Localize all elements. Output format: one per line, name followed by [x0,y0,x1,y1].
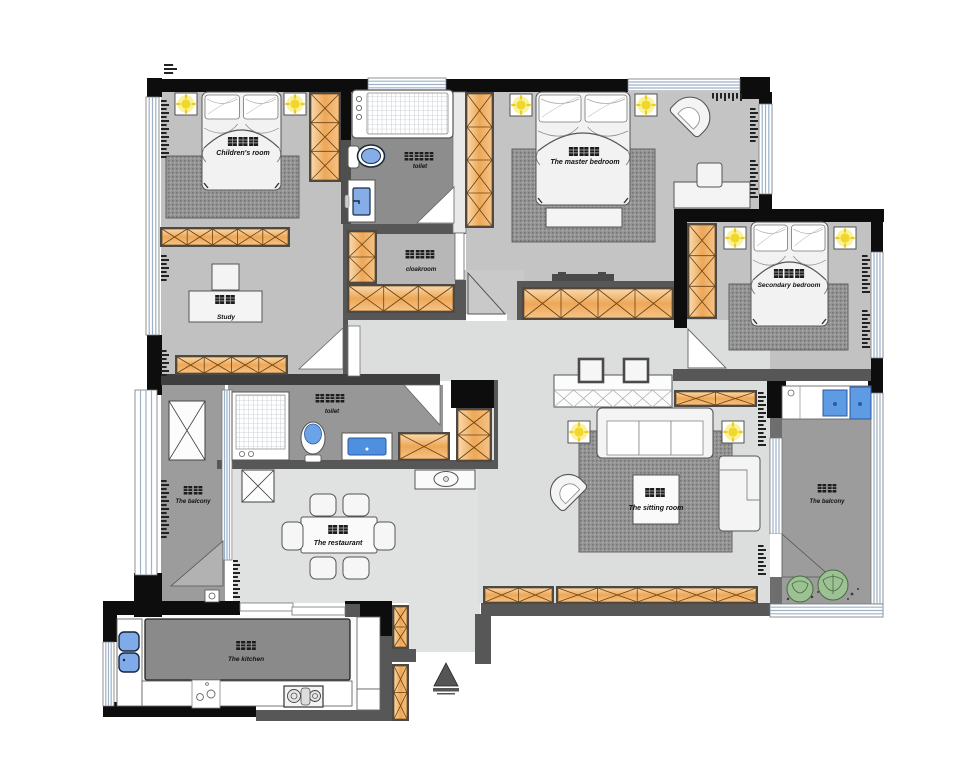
svg-text:Children's room: Children's room [216,150,269,157]
svg-text:The restaurant: The restaurant [314,540,363,547]
svg-text:The balcony: The balcony [809,499,845,505]
svg-text:Study: Study [217,314,235,321]
svg-text:The balcony: The balcony [175,499,211,505]
svg-text:cloakroom: cloakroom [406,267,437,273]
svg-text:The kitchen: The kitchen [228,656,264,663]
svg-text:toilet: toilet [325,409,340,415]
svg-text:Secondary bedroom: Secondary bedroom [758,282,821,289]
svg-text:toilet: toilet [413,164,428,170]
svg-text:The master bedroom: The master bedroom [550,159,619,166]
svg-text:The sitting room: The sitting room [629,505,684,512]
